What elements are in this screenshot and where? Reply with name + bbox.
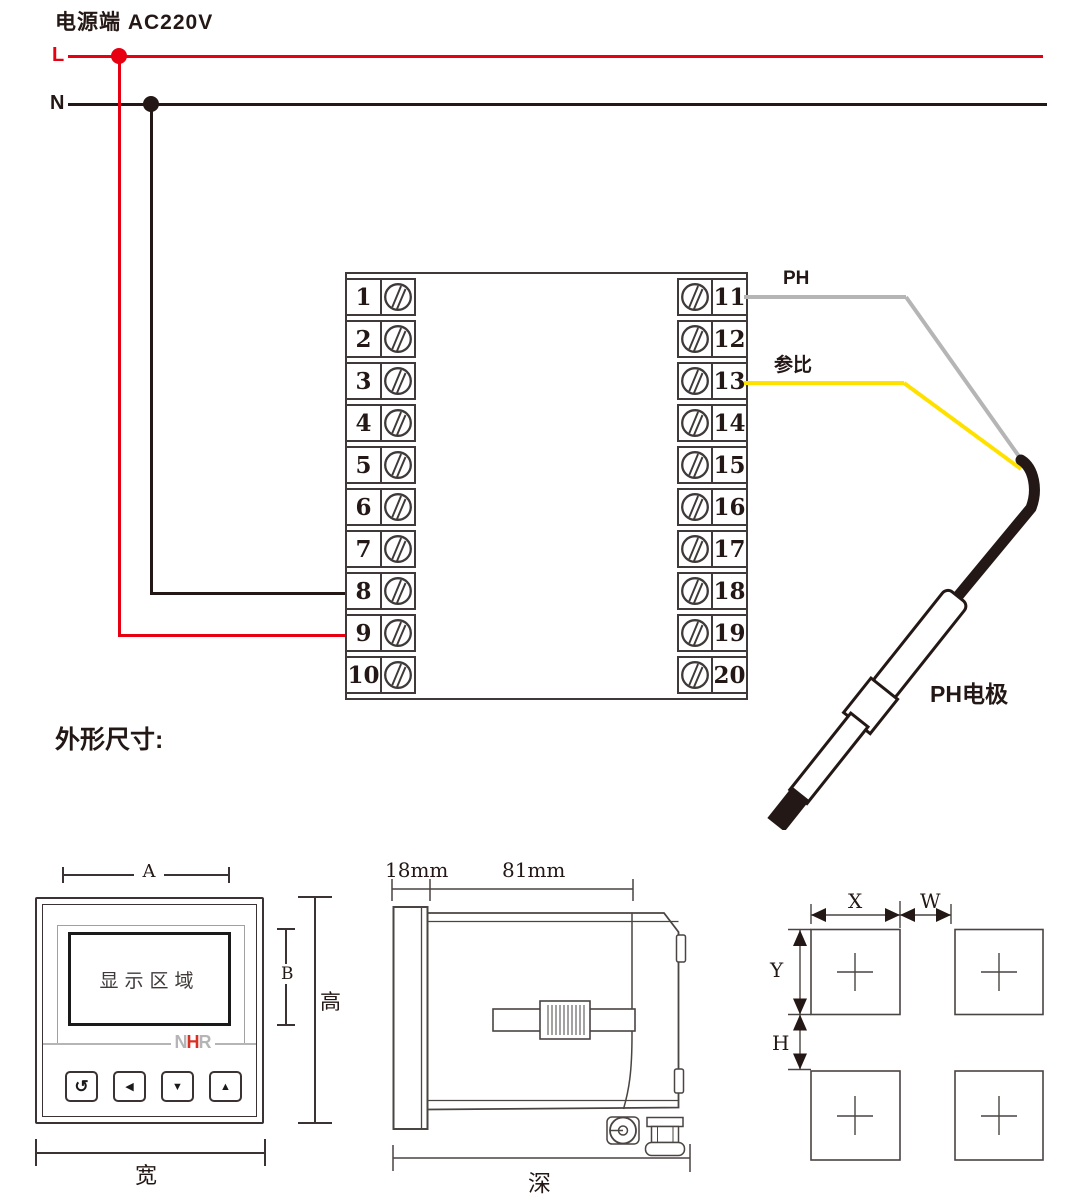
live-junction-dot: [111, 48, 127, 64]
center-cross: [981, 1096, 1017, 1135]
live-wire-to-terminal-9: [118, 634, 347, 637]
logo-letter-h: H: [187, 1032, 199, 1052]
live-wire-horizontal: [68, 55, 1043, 58]
terminal-row-12: 12: [677, 320, 748, 358]
terminal-row-18: 18: [677, 572, 748, 610]
terminal-row-16: 16: [677, 488, 748, 526]
neutral-label: N: [50, 92, 64, 115]
cable-gland-flange: [647, 1118, 683, 1127]
terminal-number: 3: [347, 364, 382, 398]
dim-width-tick-right: [264, 1139, 266, 1166]
dim-height-line: [314, 896, 316, 1124]
dim-width-label: 宽: [132, 1158, 160, 1190]
terminal-row-19: 19: [677, 614, 748, 652]
screw-icon: [382, 448, 414, 482]
terminal-row-1: 1: [345, 278, 416, 316]
back-button: ↺: [65, 1071, 98, 1102]
dim-a-tick-left: [62, 867, 64, 883]
terminal-number: 8: [347, 574, 382, 608]
ref-wire-diagonal: [904, 383, 1021, 469]
screw-icon: [382, 574, 414, 608]
screw-icon: [679, 532, 711, 566]
terminal-row-10: 10: [345, 656, 416, 694]
screw-icon: [679, 322, 711, 356]
dim-a-tick-right: [228, 867, 230, 883]
dim-depth-label: 深: [528, 1171, 551, 1197]
screw-icon: [679, 406, 711, 440]
side-view-drawing: 18mm 81mm 深: [380, 850, 720, 1200]
screw-icon: [382, 406, 414, 440]
terminal-number: 5: [347, 448, 382, 482]
outline-dimensions-title: 外形尺寸:: [55, 720, 163, 756]
terminal-row-9: 9: [345, 614, 416, 652]
terminal-row-15: 15: [677, 446, 748, 484]
dim-w-label: W: [920, 889, 941, 913]
terminal-number: 1: [347, 280, 382, 314]
live-wire-vertical: [118, 55, 121, 637]
terminal-row-3: 3: [345, 362, 416, 400]
nhr-logo: NHR: [171, 1032, 215, 1053]
terminal-row-20: 20: [677, 656, 748, 694]
logo-letter-n: N: [175, 1032, 187, 1052]
screw-icon: [679, 490, 711, 524]
screw-icon: [679, 616, 711, 650]
screw-icon: [679, 364, 711, 398]
terminal-number: 7: [347, 532, 382, 566]
dim-width-line: [35, 1152, 266, 1154]
screw-icon: [382, 616, 414, 650]
screw-icon: [382, 658, 414, 692]
terminal-row-17: 17: [677, 530, 748, 568]
terminal-number: 9: [347, 616, 382, 650]
top-dimension-line: [392, 879, 633, 901]
terminal-number: 6: [347, 490, 382, 524]
arrowhead: [793, 930, 807, 946]
terminal-row-4: 4: [345, 404, 416, 442]
arrowhead: [885, 908, 900, 922]
power-title: 电源端 AC220V: [55, 6, 213, 36]
terminal-row-6: 6: [345, 488, 416, 526]
screw-icon: [382, 364, 414, 398]
dim-81mm-label: 81mm: [502, 858, 565, 882]
dim-y-label: Y: [769, 958, 784, 982]
rear-clip-top: [677, 935, 686, 962]
center-cross: [837, 1096, 873, 1135]
electrode-cable: [954, 460, 1034, 601]
panel-cutout-drawing: X W Y H: [758, 858, 1080, 1200]
dim-18mm-label: 18mm: [385, 858, 448, 882]
dim-width-tick-left: [35, 1139, 37, 1166]
neutral-junction-dot: [143, 96, 159, 112]
down-arrow-button: ▼: [161, 1071, 194, 1102]
terminal-row-7: 7: [345, 530, 416, 568]
screw-icon: [679, 574, 711, 608]
rear-clip-bottom: [675, 1069, 684, 1093]
dim-x-label: X: [848, 889, 863, 913]
screw-icon: [679, 448, 711, 482]
electrode-drawing: PH电极: [740, 250, 1080, 830]
neutral-wire-vertical: [150, 103, 153, 595]
terminal-number: 4: [347, 406, 382, 440]
screw-icon: [382, 490, 414, 524]
arrowhead: [811, 908, 826, 922]
logo-letter-r: R: [199, 1032, 211, 1052]
front-view-drawing: A 显示区域 NHR ↺ ◀ ▼ ▲ B 高 宽: [20, 858, 365, 1200]
logo-divider-line: [43, 1043, 256, 1045]
arrowhead: [900, 908, 915, 922]
terminal-column-left: 1 2 3 4 5 6 7 8 9 10: [345, 278, 416, 694]
electrode-label: PH电极: [930, 681, 1008, 707]
dim-h-label: H: [772, 1031, 789, 1055]
live-label: L: [52, 44, 64, 67]
screw-icon: [382, 532, 414, 566]
electrode-shaft: [790, 713, 868, 803]
terminal-number: 2: [347, 322, 382, 356]
screw-icon: [382, 280, 414, 314]
arrowhead: [793, 1054, 807, 1070]
terminal-row-8: 8: [345, 572, 416, 610]
terminal-row-2: 2: [345, 320, 416, 358]
screw-icon: [679, 280, 711, 314]
terminal-number: 10: [347, 658, 382, 692]
terminal-column-right: 11 12 13 14 15 16 17 18 19 20: [677, 278, 748, 694]
arrowhead: [793, 1015, 807, 1031]
up-arrow-button: ▲: [209, 1071, 242, 1102]
cable-gland-body: [652, 1127, 679, 1143]
neutral-wire-to-terminal-8: [150, 592, 347, 595]
left-arrow-button: ◀: [113, 1071, 146, 1102]
terminal-block: 1 2 3 4 5 6 7 8 9 10 11 12 13 14 15 16 1…: [345, 272, 748, 700]
dim-height-label: 高: [317, 986, 344, 1016]
screw-icon: [382, 322, 414, 356]
screw-icon: [679, 658, 711, 692]
neutral-wire-horizontal: [68, 103, 1047, 106]
center-cross: [837, 953, 873, 991]
wiring-diagram-page: 电源端 AC220V N L 1 2 3 4 5 6 7 8 9 10 11 1…: [0, 0, 1080, 1200]
electrode-body: [763, 586, 971, 830]
front-bezel: [394, 907, 428, 1129]
cable-gland-nut: [646, 1143, 685, 1156]
center-cross: [981, 953, 1017, 991]
dim-a-label: A: [134, 861, 164, 882]
display-area: 显示区域: [68, 932, 231, 1026]
dim-b-label: B: [278, 964, 297, 984]
terminal-row-11: 11: [677, 278, 748, 316]
arrowhead: [793, 999, 807, 1015]
ph-wire-diagonal: [906, 297, 1023, 462]
terminal-row-5: 5: [345, 446, 416, 484]
terminal-row-14: 14: [677, 404, 748, 442]
terminal-row-13: 13: [677, 362, 748, 400]
